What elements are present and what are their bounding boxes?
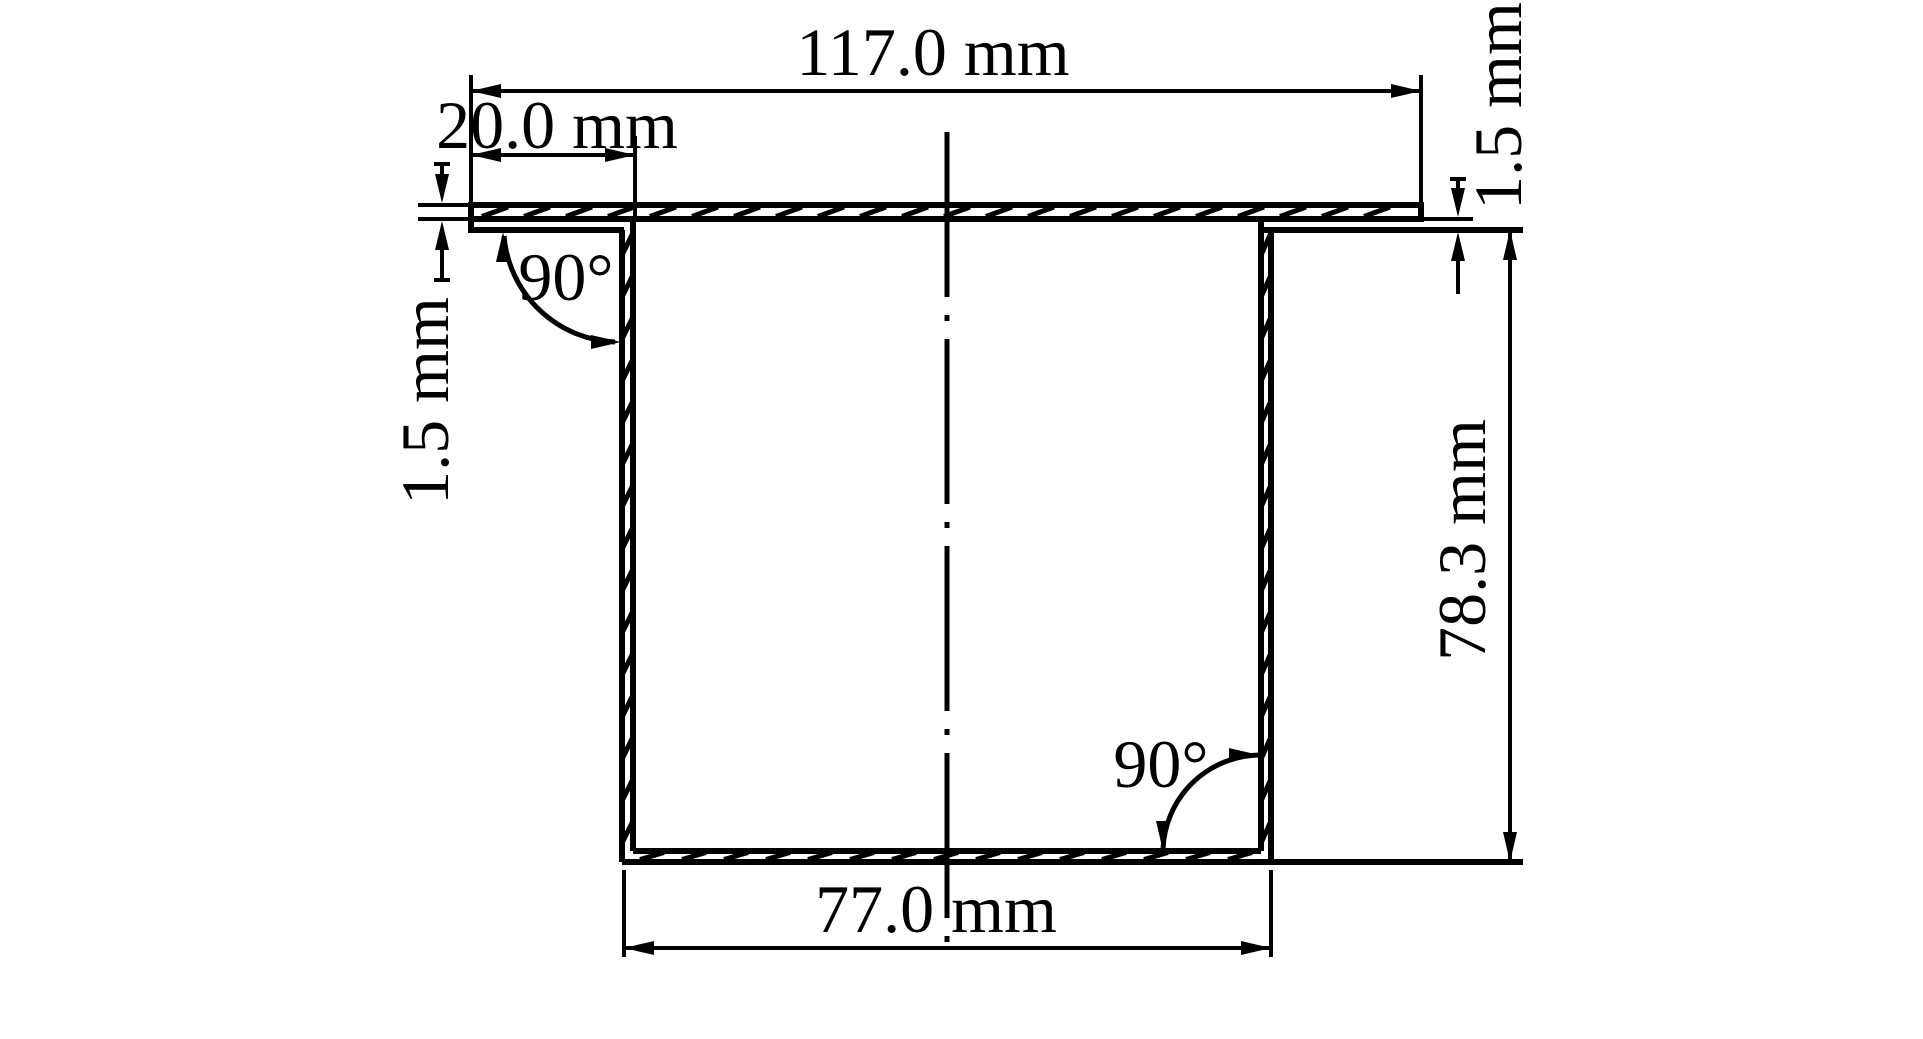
dim-flange-overhang-label: 20.0 mm <box>436 87 678 163</box>
hatch-stroke <box>1280 207 1306 217</box>
hatch-stroke <box>902 207 928 217</box>
hatch-stroke <box>482 207 508 217</box>
arrow-right-icon <box>591 335 621 349</box>
part-outline <box>468 202 1523 862</box>
hatch-stroke <box>692 207 718 217</box>
hatch-stroke <box>608 207 634 217</box>
dim-bottom-width: 77.0 mm <box>624 870 1271 957</box>
angle-top-left: 90° <box>496 232 621 349</box>
hatch-stroke <box>734 207 760 217</box>
arrow-up-icon <box>1451 232 1465 261</box>
hatch-stroke <box>1196 207 1222 217</box>
hatch-stroke <box>818 207 844 217</box>
hatch-stroke <box>1238 207 1264 217</box>
dim-cup-depth-label: 78.3 mm <box>1424 419 1500 661</box>
arrow-right-icon <box>1241 941 1271 955</box>
drawing-canvas: 117.0 mm 20.0 mm 1.5 mm 1.5 mm 78.3 mm <box>0 0 1923 1039</box>
hatch-stroke <box>776 207 802 217</box>
hatch-stroke <box>1070 207 1096 217</box>
arrow-right-icon <box>1229 748 1259 762</box>
hatch-stroke <box>1112 207 1138 217</box>
dim-flange-width-label: 117.0 mm <box>796 14 1069 90</box>
section-hatching <box>482 207 1390 860</box>
arrow-left-icon <box>624 941 654 955</box>
hatch-stroke <box>1028 207 1054 217</box>
dim-thickness-left-label: 1.5 mm <box>387 297 463 505</box>
arrow-up-icon <box>435 221 449 250</box>
hatch-stroke <box>650 207 676 217</box>
dim-cup-depth: 78.3 mm <box>1424 230 1517 862</box>
cross-section-drawing: 117.0 mm 20.0 mm 1.5 mm 1.5 mm 78.3 mm <box>0 0 1923 1039</box>
hatch-stroke <box>986 207 1012 217</box>
angle-top-left-label: 90° <box>518 239 613 315</box>
arrow-down-icon <box>1156 821 1170 851</box>
angle-bottom-right-label: 90° <box>1113 726 1208 802</box>
dim-thickness-right: 1.5 mm <box>1421 2 1536 294</box>
hatch-stroke <box>1322 207 1348 217</box>
dim-bottom-width-label: 77.0 mm <box>815 871 1057 947</box>
hatch-stroke <box>566 207 592 217</box>
hatch-stroke <box>524 207 550 217</box>
hatch-stroke <box>1364 207 1390 217</box>
hatch-stroke <box>860 207 886 217</box>
arrow-right-icon <box>1391 84 1421 98</box>
arrow-down-icon <box>1503 832 1517 862</box>
dim-thickness-right-label: 1.5 mm <box>1460 2 1536 210</box>
angle-bottom-right: 90° <box>1113 726 1259 851</box>
arrow-up-icon <box>1503 230 1517 260</box>
dim-thickness-left: 1.5 mm <box>387 164 468 505</box>
hatch-stroke <box>1154 207 1180 217</box>
arrow-down-icon <box>435 174 449 203</box>
